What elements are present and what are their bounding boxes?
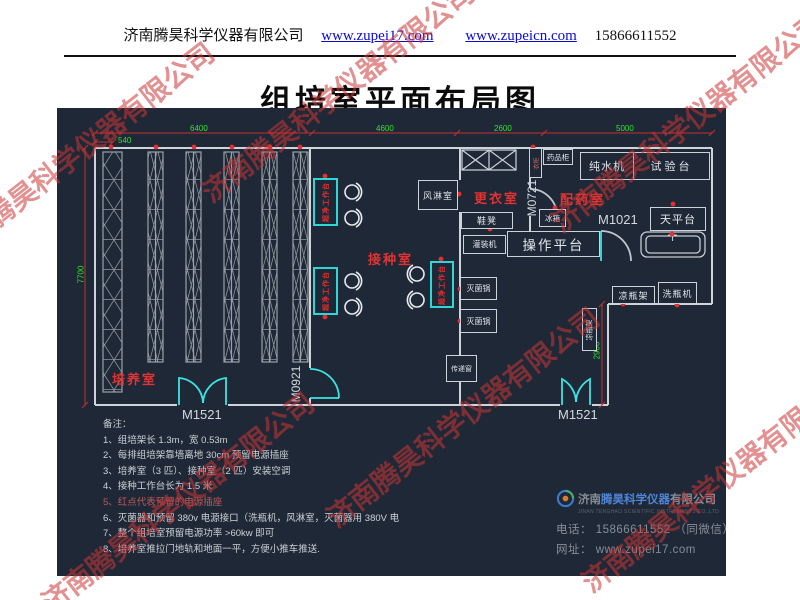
note-item: 8、培养室推拉门地轨和地面一平，方便小推车推送.	[103, 542, 399, 558]
culture-racks	[103, 152, 308, 392]
notes-title: 备注：	[103, 417, 399, 433]
notes-block: 备注： 1、组培架长 1.3m，宽 0.53m 2、每排组培架靠墙离地 30cm…	[103, 417, 399, 557]
air-shower-room: 风淋室	[418, 180, 458, 210]
dim-7700: 7700	[77, 257, 86, 293]
dim-540: 540	[118, 136, 131, 145]
sterilizer-1: 灭菌锅	[460, 277, 497, 300]
pass-through-window: 传递窗	[446, 355, 477, 382]
clean-bench-2: 超净工作台	[313, 267, 338, 315]
note-item: 4、接种工作台长为 1.5 米	[103, 479, 399, 495]
dim-2600: 2600	[494, 124, 512, 133]
brand-prefix: 济南	[578, 491, 601, 507]
dim-6400: 6400	[190, 124, 208, 133]
bottle-cooling-rack-v: 凉瓶架	[582, 308, 597, 351]
bottle-washer: 洗瓶机	[658, 282, 697, 304]
sterilizer-2: 灭菌锅	[460, 309, 497, 333]
door-label-m1521-right: M1521	[558, 407, 598, 422]
bottle-cooling-rack-h: 凉瓶架	[612, 286, 655, 304]
shoe-bench: 鞋凳	[461, 212, 513, 229]
balance-table: 天平台	[650, 207, 706, 231]
page: 济南腾昊科学仪器有限公司 www.zupei17.com www.zupeicn…	[0, 0, 800, 600]
medicine-cabinet: 药品柜	[543, 149, 573, 165]
operation-platform: 操作平台	[507, 231, 600, 257]
filling-machine: 灌装机	[463, 235, 506, 254]
footer-brand-block: 济南腾昊科学仪器有限公司 JINAN TENGHAO SCIENTIFIC IN…	[556, 489, 732, 557]
note-item: 5、红点代表预留的电源插座	[103, 495, 399, 511]
brand-suffix: 有限公司	[670, 491, 716, 507]
footer-phone: 电话： 15866611552 （同微信）	[556, 521, 732, 537]
pure-water-machine: 纯水机	[580, 152, 634, 180]
note-item: 6、灭菌器和预留 380v 电源接口（洗瓶机，风淋室，灭菌器用 380V 电	[103, 511, 399, 527]
dim-4600: 4600	[376, 124, 394, 133]
note-item: 2、每排组培架靠墙离地 30cm 预留电源插座	[103, 448, 399, 464]
door-label-m0721: M0721	[525, 178, 539, 218]
dim-5000: 5000	[616, 124, 634, 133]
test-bench: 试验台	[633, 152, 710, 180]
wardrobe-cabinet: 衣柜	[529, 148, 542, 178]
brand-name: 腾昊科学仪器	[601, 491, 670, 507]
door-label-m1021: M1021	[598, 212, 638, 227]
footer-website: 网址： www.zupei17.com	[556, 541, 732, 557]
room-label-inoculation: 接种室	[368, 249, 413, 268]
room-label-culture: 培养室	[112, 369, 157, 388]
clean-bench-3: 超净工作台	[430, 261, 454, 308]
locker-cabinet	[462, 150, 516, 170]
brand-logo-icon	[556, 489, 575, 508]
fridge: 冰箱	[539, 209, 566, 227]
door-label-m0921: M0921	[289, 364, 303, 404]
note-item: 1、组培架长 1.3m，宽 0.53m	[103, 433, 399, 449]
clean-bench-1: 超净工作台	[313, 178, 338, 226]
room-label-changing: 更衣室	[474, 188, 519, 207]
room-label-dispensing: 配药室	[560, 189, 605, 208]
note-item: 3、培养室（3 匹）、接种室（2 匹）安装空调	[103, 464, 399, 480]
brand-english: JINAN TENGHAO SCIENTIFIC INSTRUMENTS CO.…	[578, 509, 732, 515]
note-item: 7、整个组培室预留电源功率 >60kw 即可	[103, 526, 399, 542]
